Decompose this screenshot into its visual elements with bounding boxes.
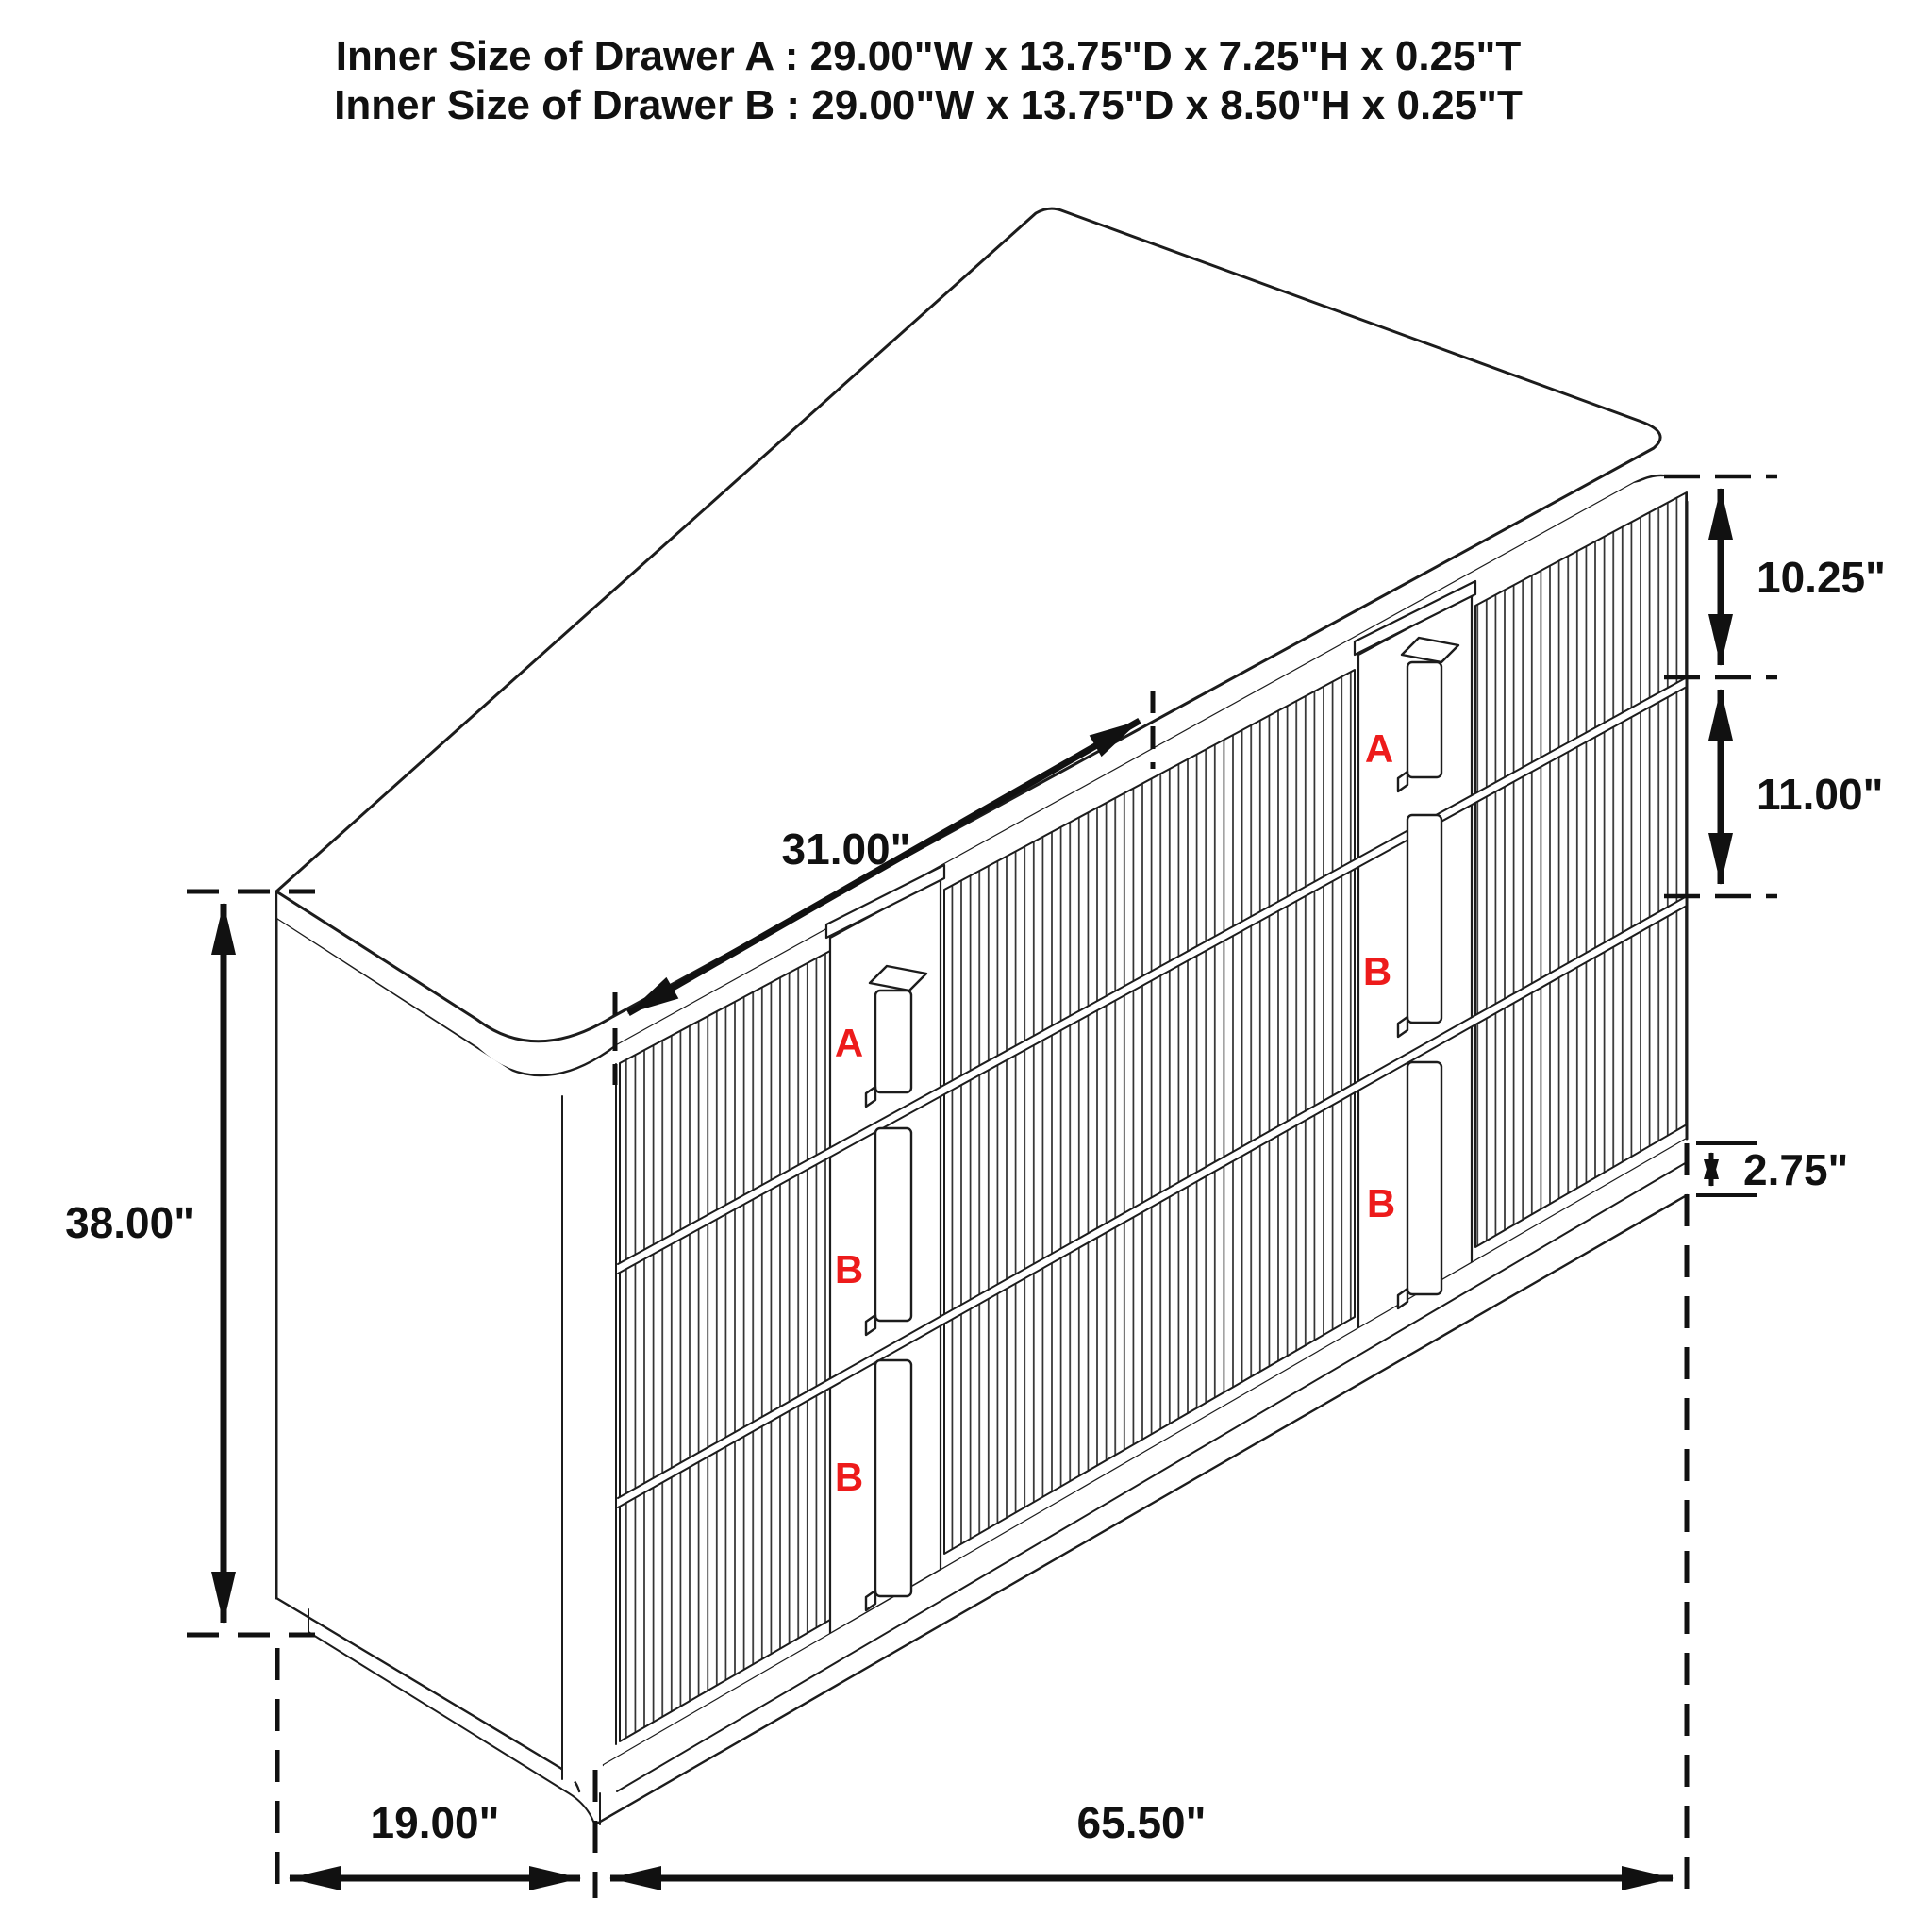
dim-middle-drawer-height: 11.00" [1664,690,1883,896]
drawer-label-left-b1: B [835,1247,863,1291]
dim-depth-label: 19.00" [371,1798,500,1847]
dresser-drawing: A B B A B B [276,208,1687,1826]
dim-top-drawer-height: 10.25" [1664,476,1886,677]
left-end-panel [276,919,562,1777]
dim-base-height-label: 2.75" [1743,1145,1848,1194]
drawer-label-right-b1: B [1363,949,1391,993]
dim-center-drawer-width-label: 31.00" [782,824,911,874]
dim-overall-height-label: 38.00" [65,1198,194,1247]
title-line-1: Inner Size of Drawer A : 29.00"W x 13.75… [336,33,1522,79]
fluted-section-left [620,951,830,1741]
drawer-label-left-a: A [835,1021,863,1065]
dim-top-drawer-height-label: 10.25" [1757,553,1886,602]
dim-overall-width-label: 65.50" [1077,1798,1207,1847]
dim-middle-drawer-height-label: 11.00" [1757,770,1883,819]
drawer-label-right-b2: B [1367,1181,1395,1225]
dresser-dimension-diagram: A B B A B B 38.00" 19.00" 65.50" 31.00" [0,0,1932,1932]
diagram-canvas: A B B A B B 38.00" 19.00" 65.50" 31.00" [0,0,1932,1932]
figure-title: Inner Size of Drawer A : 29.00"W x 13.75… [334,33,1523,128]
fluted-section-right [1475,492,1687,1247]
drawer-label-right-a: A [1365,726,1393,771]
dim-base-height: 2.75" [1696,1143,1848,1195]
title-line-2: Inner Size of Drawer B : 29.00"W x 13.75… [334,82,1523,128]
drawer-label-left-b2: B [835,1455,863,1499]
